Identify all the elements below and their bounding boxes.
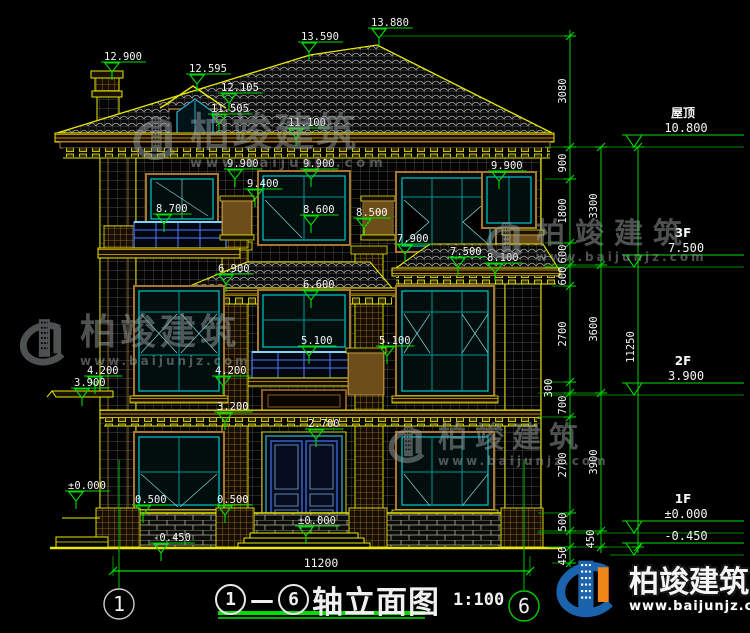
spot-elevation-label: 5.100 [301, 335, 333, 347]
cad-canvas: 12.90013.59013.88012.59512.10511.50511.1… [0, 0, 750, 633]
title-text: 轴立面图 [312, 577, 440, 622]
spot-elevation-label: ±0.000 [68, 480, 106, 492]
spot-elevation-label: 3.900 [74, 377, 106, 389]
level-flag-marker [626, 255, 642, 267]
title-dash: — [250, 586, 274, 614]
dim-value-vertical: 3300 [588, 193, 600, 218]
dim-value-vertical: 2700 [557, 321, 569, 346]
spot-elevation-label: 7.500 [450, 246, 482, 258]
level-value-label: ±0.000 [664, 507, 707, 521]
dim-value-vertical: 3900 [588, 449, 600, 474]
spot-elevation-label: 8.500 [356, 207, 388, 219]
dim-value-vertical: 2700 [557, 452, 569, 477]
title-axis-start-bubble: 1 [215, 584, 246, 615]
dim-value-vertical: 600 [557, 267, 569, 286]
brand-logo-block: 柏竣建筑 www.baijunjz.com [549, 551, 750, 629]
spot-elevation-label: 8.600 [303, 204, 335, 216]
spot-elevation-label: 3.200 [217, 401, 249, 413]
main-eave-band [55, 133, 554, 158]
spot-elevation-label: 2.700 [308, 418, 340, 430]
spot-elevation-label: 13.880 [371, 17, 409, 29]
brand-name: 柏竣建筑 [629, 566, 750, 599]
spot-elevation-label: 9.900 [227, 158, 259, 170]
level-value-label: 10.800 [664, 121, 707, 135]
level-flag-marker [626, 521, 642, 533]
drawing-title: 1 — 6 轴立面图 1:100 [215, 577, 504, 622]
spot-elevation-marker [372, 29, 386, 46]
dim-value-vertical: 11250 [625, 331, 637, 363]
spot-elevation-label: 9.400 [247, 178, 279, 190]
level-value-label: -0.450 [664, 529, 707, 543]
spot-elevation-label: 6.900 [218, 263, 250, 275]
dim-value-vertical: 3600 [588, 316, 600, 341]
spot-elevation-label: 6.600 [303, 279, 335, 291]
level-value-label: 3.900 [668, 369, 704, 383]
window-1f-right [392, 432, 498, 515]
title-scale: 1:100 [453, 590, 504, 610]
spot-elevation-label: ±0.000 [298, 515, 336, 527]
title-axis-end-bubble: 6 [278, 584, 309, 615]
level-floor-label: 3F [675, 226, 692, 240]
spot-elevation-label: 12.105 [221, 82, 259, 94]
dim-value-vertical: 450 [585, 530, 597, 549]
spot-elevation-label: 11.100 [288, 117, 326, 129]
spot-elevation-label: 11.505 [211, 103, 249, 115]
brand-logo-icon [549, 551, 625, 629]
spot-elevation-label: 0.500 [135, 494, 167, 506]
spot-elevation-label: 4.200 [87, 365, 119, 377]
spot-elevation-label: 12.595 [189, 63, 227, 75]
spot-elevation-label: 4.200 [215, 365, 247, 377]
spot-elevation-label: 0.500 [217, 494, 249, 506]
spot-elevation-label: 5.100 [379, 335, 411, 347]
spot-elevation-label: 12.900 [104, 51, 142, 63]
spot-elevation-label: 9.900 [491, 160, 523, 172]
spot-elevation-label: 9.900 [303, 158, 335, 170]
level-floor-label: 屋顶 [671, 106, 695, 120]
balcony-2f-center [248, 290, 360, 412]
parapet-2f-right [346, 348, 386, 395]
spot-elevation-marker [69, 492, 83, 509]
balconet-left [220, 196, 254, 240]
spot-elevation-label: 8.100 [487, 252, 519, 264]
window-2f-left [130, 286, 228, 403]
entry-steps [238, 533, 370, 548]
brand-url: www.baijunjz.com [629, 599, 750, 614]
dim-value-vertical: 600 [557, 245, 569, 264]
level-floor-label: 2F [675, 354, 692, 368]
level-floor-label: 1F [675, 492, 692, 506]
dim-value-horizontal: 11200 [304, 556, 339, 570]
dim-value-vertical: 1800 [557, 198, 569, 223]
spot-elevation-label: 8.700 [156, 203, 188, 215]
dim-value-vertical: 900 [557, 154, 569, 173]
dim-value-vertical: 500 [557, 513, 569, 532]
dim-value-vertical: 300 [543, 379, 555, 398]
spot-elevation-label: -0.450 [153, 532, 191, 544]
axis-bubble-number: 6 [518, 594, 530, 618]
dim-chains [564, 30, 644, 567]
level-value-label: 7.500 [668, 241, 704, 255]
cad-screenshot: 12.90013.59013.88012.59512.10511.50511.1… [0, 0, 750, 633]
axis-bubble-number: 1 [113, 592, 125, 616]
dim-value-vertical: 3080 [557, 78, 569, 103]
level-flag-marker [626, 383, 642, 395]
dim-value-vertical: 700 [557, 396, 569, 415]
spot-elevation-label: 7.900 [397, 233, 429, 245]
window-3f-far-right [482, 172, 536, 228]
spot-elevation-label: 13.590 [301, 31, 339, 43]
